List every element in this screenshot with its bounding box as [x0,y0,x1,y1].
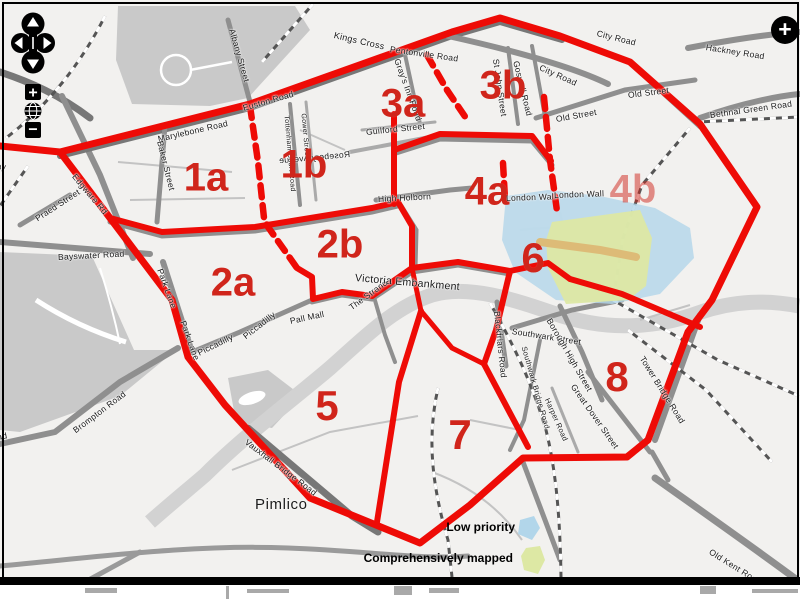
legend-swatch-low-priority [514,514,542,544]
zone-label-7: 7 [448,411,471,459]
zone-label-3a: 3a [381,82,426,127]
legend-label-low-priority: Low priority [315,520,515,534]
zone-label-6: 6 [521,234,544,282]
zone-label-8: 8 [605,353,628,401]
zone-label-1a: 1a [184,156,229,201]
zone-label-5: 5 [315,382,338,430]
street-label: London Wall [506,191,557,203]
place-label: Pimlico [255,496,308,513]
legend-label-comprehensively-mapped: Comprehensively mapped [313,551,513,565]
plus-icon: + [28,85,37,102]
zone-label-2b: 2b [317,223,364,268]
zoom-out-button[interactable]: − [25,122,41,139]
zoom-in-button[interactable]: + [25,84,41,102]
map-viewport[interactable]: WestwayPraed StreetEdgware RdMarylebone … [0,0,800,600]
zone-label-1b: 1b [281,143,328,188]
zone-label-4b: 4b [610,168,657,213]
globe-button[interactable] [25,103,42,120]
bottom-divider-bar [0,577,800,585]
pan-arrows-icon[interactable] [11,13,55,74]
maximize-button[interactable]: + [771,16,799,44]
zone-label-3b: 3b [480,64,527,109]
bottom-strip [0,585,800,600]
pan-zoom-control[interactable]: + − [11,10,55,142]
zone-label-4a: 4a [465,170,510,215]
street-label: London Wall [554,188,605,200]
minus-icon: − [28,122,37,139]
legend-swatch-comprehensively-mapped [518,544,548,578]
zone-label-2a: 2a [211,261,256,306]
